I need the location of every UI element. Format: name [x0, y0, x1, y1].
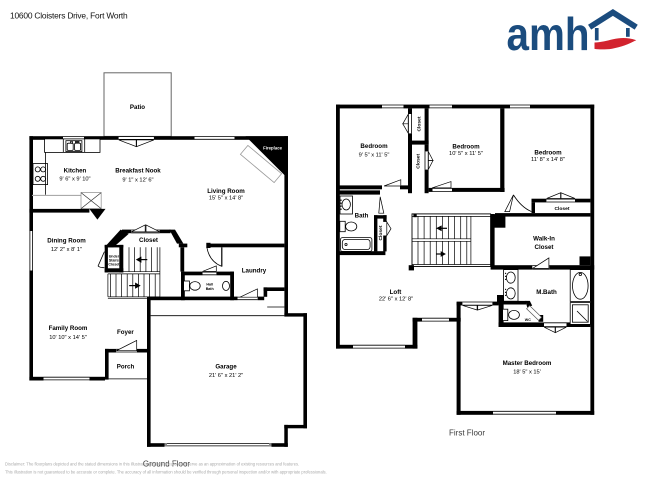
svg-text:Closet: Closet: [416, 153, 422, 168]
svg-text:12' 2" x 8' 1": 12' 2" x 8' 1": [51, 247, 82, 253]
svg-text:Foyer: Foyer: [117, 329, 134, 336]
svg-text:Walk-In: Walk-In: [533, 235, 555, 242]
svg-text:Closet: Closet: [555, 206, 570, 212]
svg-text:9' 5" x 11' 5": 9' 5" x 11' 5": [359, 152, 390, 158]
svg-text:11' 8" x 14' 8": 11' 8" x 14' 8": [531, 157, 565, 163]
svg-text:10' 5" x 11' 5": 10' 5" x 11' 5": [449, 151, 483, 157]
svg-text:Laundry: Laundry: [242, 268, 267, 275]
svg-text:Disclaimer: The floorplans dep: Disclaimer: The floorplans depicted and …: [5, 462, 299, 467]
svg-text:Master Bedroom: Master Bedroom: [503, 360, 552, 367]
svg-text:Family Room: Family Room: [49, 325, 88, 332]
svg-text:Dining Room: Dining Room: [47, 238, 86, 245]
svg-text:Fireplace: Fireplace: [263, 145, 282, 150]
svg-text:21' 6" x 21' 2": 21' 6" x 21' 2": [209, 373, 243, 379]
svg-text:Closet: Closet: [535, 244, 554, 251]
svg-text:M.Bath: M.Bath: [536, 289, 557, 296]
svg-text:Closet: Closet: [108, 262, 120, 266]
svg-text:Porch: Porch: [117, 364, 135, 371]
svg-text:Patio: Patio: [130, 104, 145, 111]
svg-text:15' 5" x 14' 8": 15' 5" x 14' 8": [209, 196, 243, 202]
svg-text:Kitchen: Kitchen: [64, 168, 87, 175]
svg-text:22' 6" x 12' 8": 22' 6" x 12' 8": [379, 297, 413, 303]
svg-text:Bedroom: Bedroom: [534, 150, 562, 157]
svg-text:Closet: Closet: [378, 225, 384, 240]
svg-text:Garage: Garage: [215, 364, 237, 371]
svg-text:9' 6" x 9' 10": 9' 6" x 9' 10": [59, 177, 90, 183]
svg-text:Closet: Closet: [416, 116, 422, 131]
svg-text:10600 Cloisters Drive, Fort Wo: 10600 Cloisters Drive, Fort Worth: [10, 11, 128, 21]
svg-text:This illustration is not guara: This illustration is not guaranteed to b…: [5, 470, 327, 475]
svg-text:9' 1" x 12' 6": 9' 1" x 12' 6": [122, 178, 153, 184]
svg-text:18' 5" x 15': 18' 5" x 15': [513, 370, 541, 376]
svg-text:amh: amh: [507, 8, 590, 60]
svg-text:Bedroom: Bedroom: [360, 143, 388, 150]
svg-text:WC: WC: [525, 318, 531, 322]
svg-text:Closet: Closet: [139, 237, 158, 244]
svg-text:Hall: Hall: [206, 282, 213, 286]
svg-text:Loft: Loft: [390, 289, 402, 296]
svg-text:Bath: Bath: [355, 212, 369, 219]
svg-text:First Floor: First Floor: [449, 429, 485, 438]
svg-text:10' 10" x 14' 5": 10' 10" x 14' 5": [49, 335, 87, 341]
svg-text:Living Room: Living Room: [207, 188, 245, 195]
svg-text:Bath: Bath: [206, 287, 214, 291]
svg-text:Breakfast Nook: Breakfast Nook: [115, 168, 161, 175]
svg-text:Bedroom: Bedroom: [452, 143, 480, 150]
